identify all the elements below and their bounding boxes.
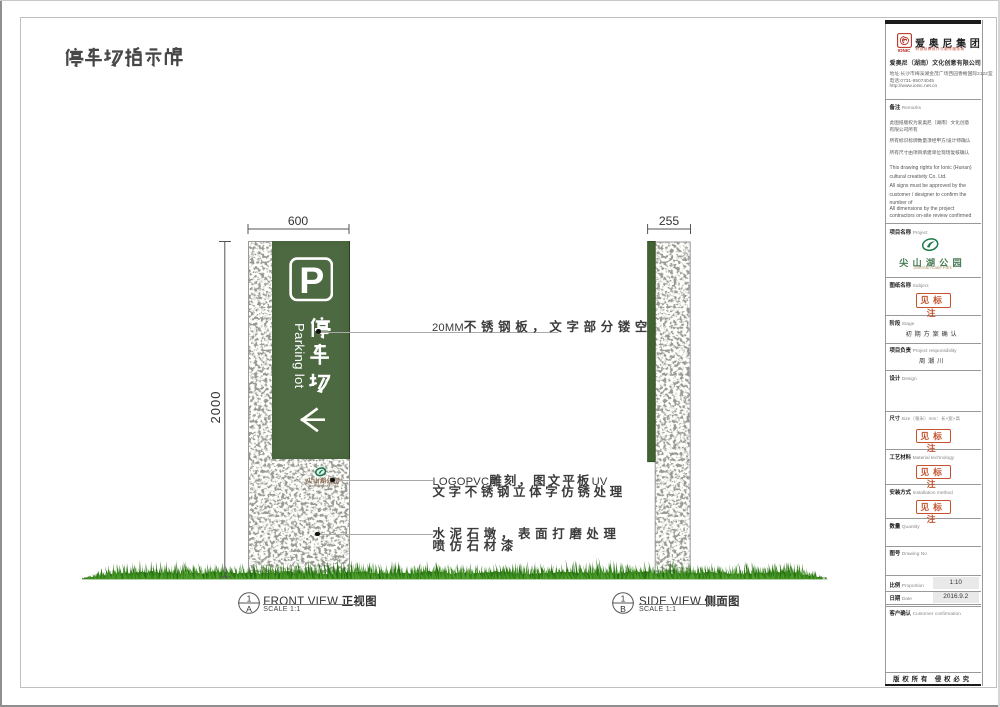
svg-text:2000: 2000: [208, 391, 223, 424]
svg-text:600: 600: [288, 214, 309, 228]
svg-text:1: 1: [620, 593, 625, 603]
svg-text:1: 1: [246, 593, 251, 603]
svg-text:B: B: [620, 604, 626, 614]
svg-text:255: 255: [659, 214, 680, 228]
svg-text:P: P: [299, 259, 324, 301]
svg-text:A: A: [246, 604, 252, 614]
